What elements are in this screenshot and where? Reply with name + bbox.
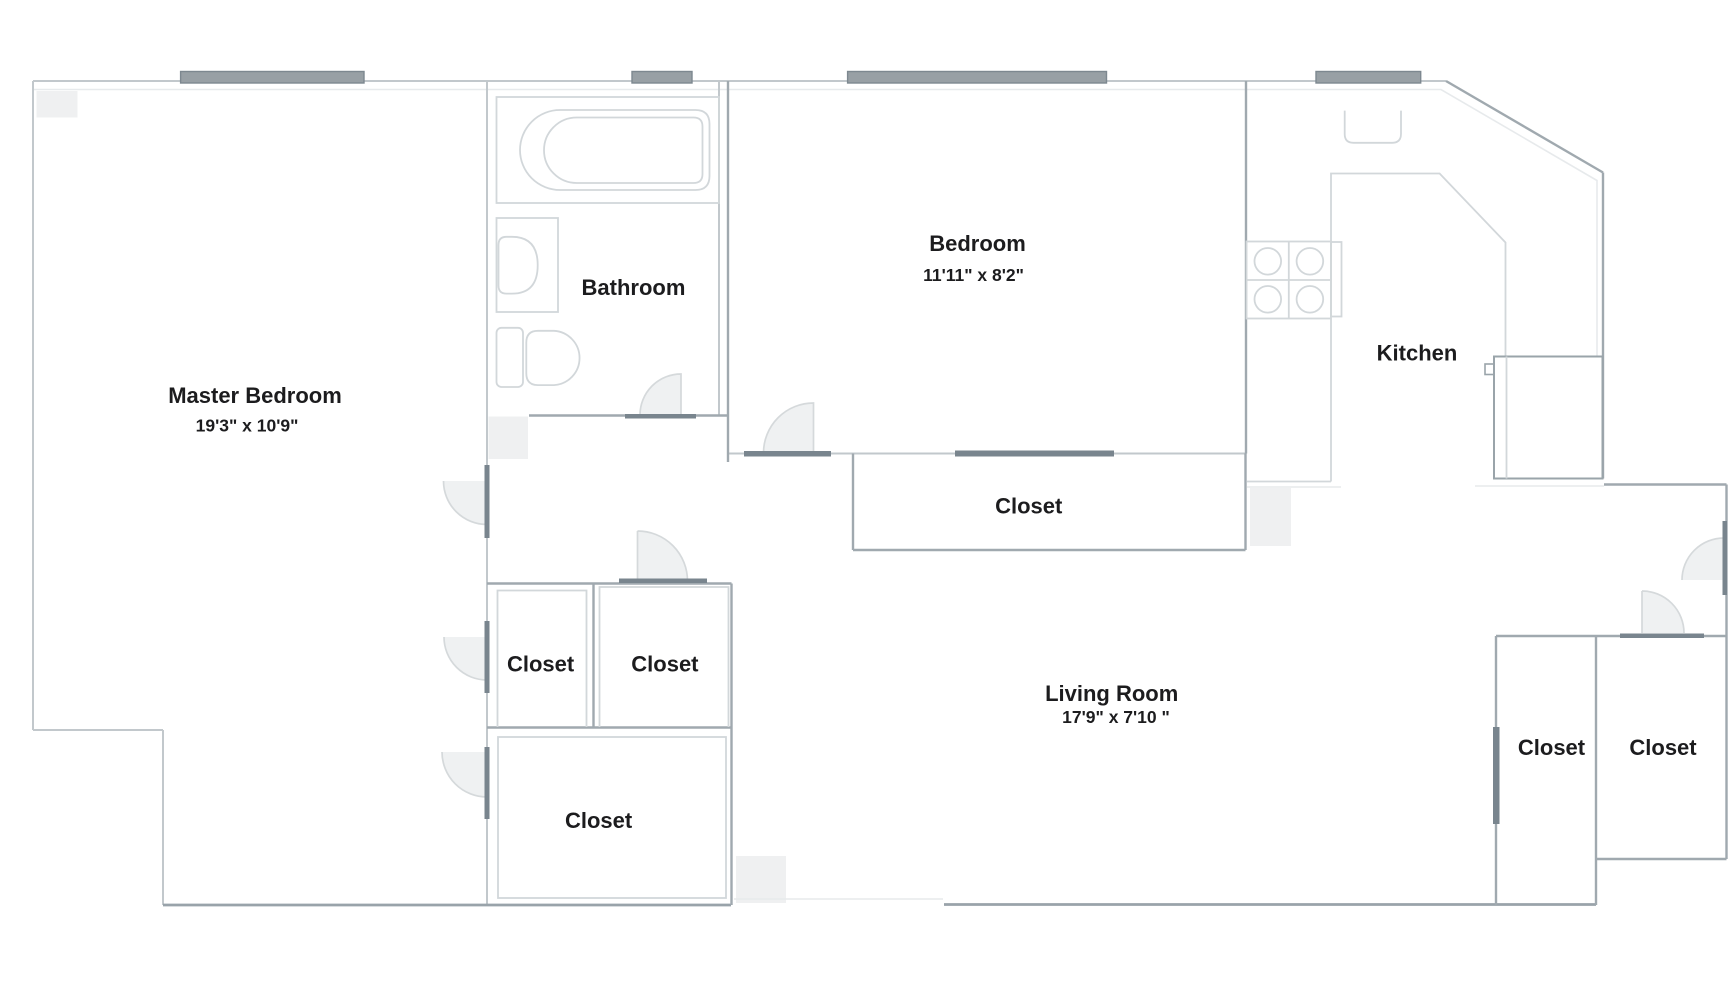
svg-text:Closet: Closet	[507, 652, 575, 677]
svg-text:Living Room: Living Room	[1045, 681, 1178, 706]
svg-text:Closet: Closet	[565, 808, 633, 833]
svg-text:Closet: Closet	[631, 652, 699, 677]
svg-text:11'11" x 8'2": 11'11" x 8'2"	[923, 265, 1024, 285]
svg-text:Closet: Closet	[1629, 735, 1697, 760]
svg-text:Kitchen: Kitchen	[1377, 341, 1458, 366]
svg-text:19'3" x 10'9": 19'3" x 10'9"	[196, 416, 299, 436]
svg-text:Bedroom: Bedroom	[929, 231, 1026, 256]
svg-text:Closet: Closet	[1518, 735, 1586, 760]
svg-text:Master Bedroom: Master Bedroom	[168, 383, 342, 408]
svg-text:Closet: Closet	[995, 494, 1063, 519]
svg-text:Bathroom: Bathroom	[582, 275, 686, 300]
svg-text:17'9" x 7'10 ": 17'9" x 7'10 "	[1062, 707, 1170, 727]
